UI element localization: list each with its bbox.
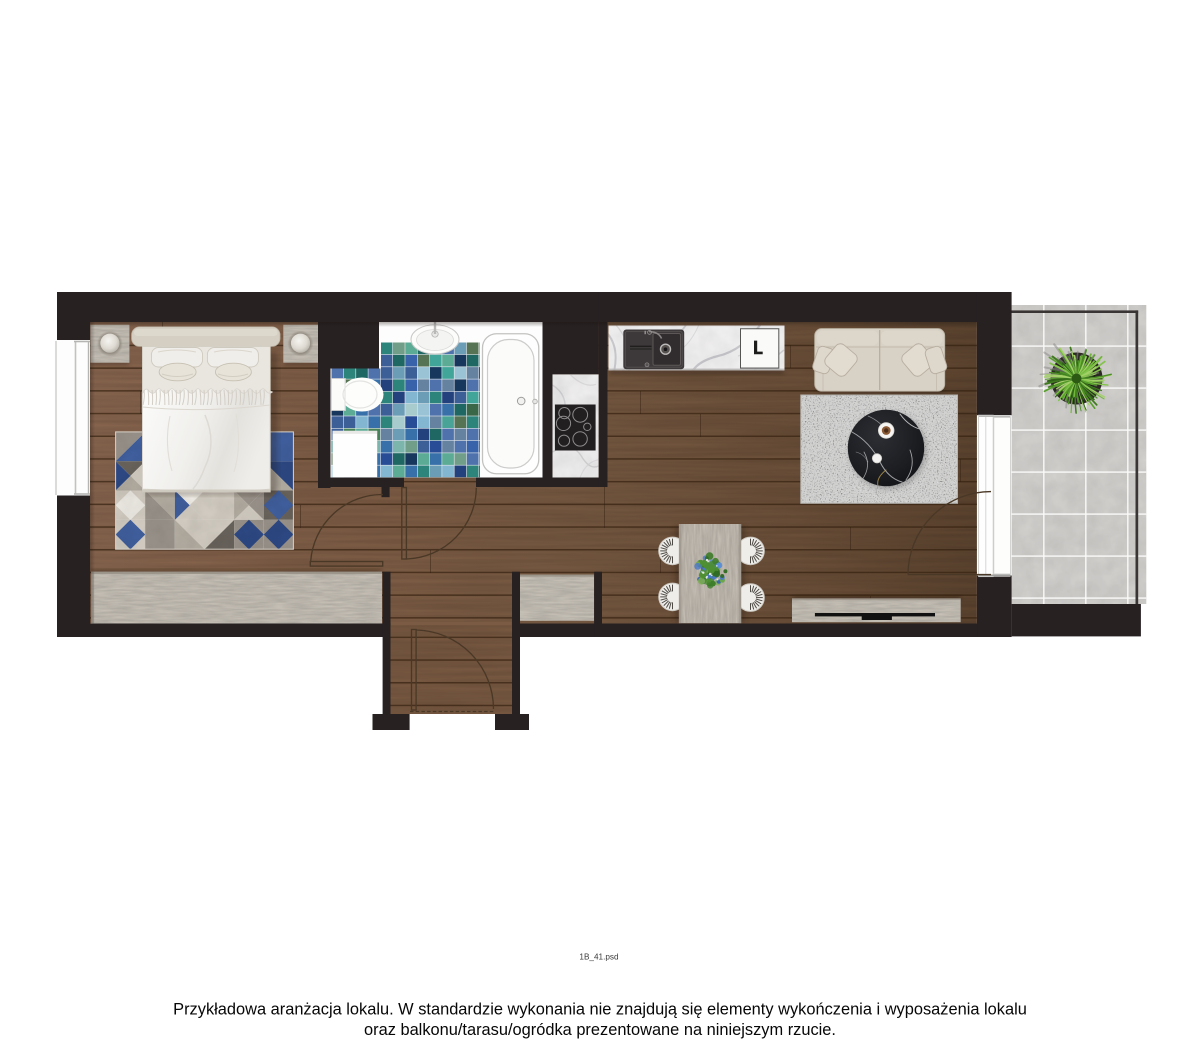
svg-text:oraz balkonu/tarasu/ogródka pr: oraz balkonu/tarasu/ogródka prezentowane… (364, 1021, 836, 1039)
svg-text:1B_41.psd: 1B_41.psd (579, 953, 619, 962)
svg-text:Przykładowa aranżacja lokalu.: Przykładowa aranżacja lokalu. W standard… (173, 1001, 1027, 1019)
